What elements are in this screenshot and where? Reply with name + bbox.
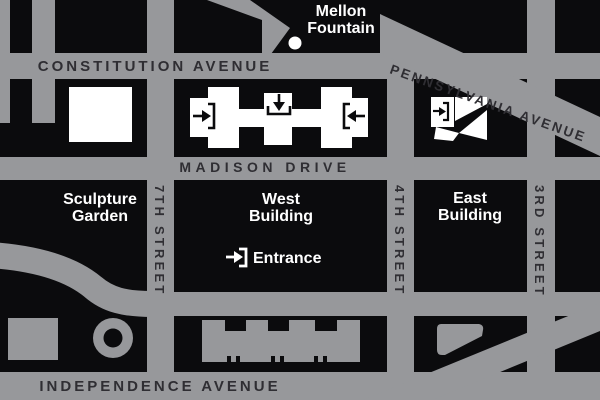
sculpture-garden-label-line1: Sculpture bbox=[63, 191, 137, 208]
sculpture-garden-label-line2: Garden bbox=[72, 208, 128, 225]
south-mall-building-footprint bbox=[202, 320, 360, 362]
east-building-label-line2: Building bbox=[438, 207, 502, 224]
west-building-label-line1: West bbox=[262, 191, 301, 208]
constitution-avenue-label: CONSTITUTION AVENUE bbox=[38, 58, 273, 75]
west-edge-street-road bbox=[0, 0, 10, 123]
northwest-building-footprint bbox=[69, 87, 132, 142]
seventh-street-label: 7TH STREET bbox=[152, 185, 167, 296]
southwest-building-footprint bbox=[8, 318, 58, 360]
map-root: CONSTITUTION AVENUE MADISON DRIVE INDEPE… bbox=[0, 0, 600, 400]
circular-plaza bbox=[93, 318, 133, 358]
fourth-street-label: 4TH STREET bbox=[392, 185, 407, 296]
mellon-fountain-label-line1: Mellon bbox=[316, 3, 367, 20]
mellon-fountain-label-line2: Fountain bbox=[307, 20, 375, 37]
east-building-label-line1: East bbox=[453, 190, 487, 207]
gallery-area-map: CONSTITUTION AVENUE MADISON DRIVE INDEPE… bbox=[0, 0, 600, 400]
independence-avenue-label: INDEPENDENCE AVENUE bbox=[39, 378, 280, 395]
entrance-label: Entrance bbox=[253, 250, 322, 267]
madison-drive-label: MADISON DRIVE bbox=[179, 159, 350, 175]
west-building-label-line2: Building bbox=[249, 208, 313, 225]
third-street-label: 3RD STREET bbox=[532, 185, 547, 298]
mellon-fountain-dot bbox=[289, 37, 302, 50]
